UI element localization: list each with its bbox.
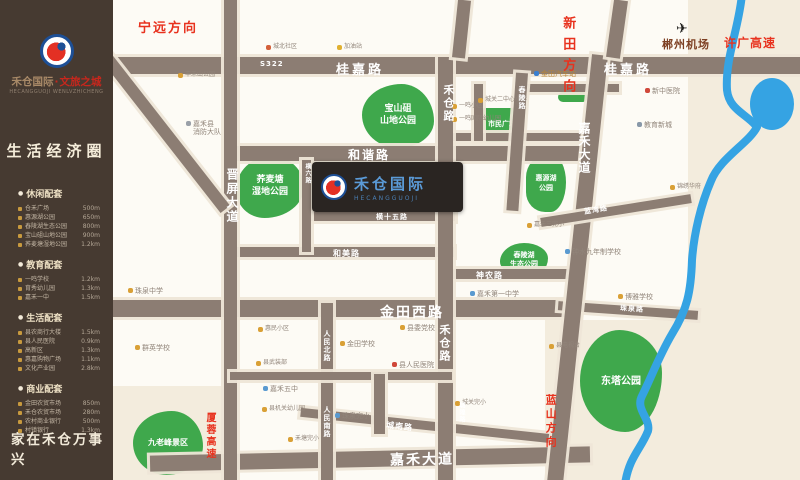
poi-label: 珠泉中学 (128, 287, 163, 295)
project-block: 禾仓国际 HECANGGUOJI (312, 162, 463, 212)
direction-sign: 宁远方向 (138, 22, 198, 36)
park-label: 惠源湖 (536, 174, 557, 183)
poi-icon (565, 249, 570, 254)
map-area: 荞麦塘湿地公园宝山砠山地公园市民广场惠源湖公园舂陵湖生态公园东塔公园九老峰景区 (0, 0, 800, 480)
park: 东塔公园 (580, 330, 662, 432)
poi-icon (263, 386, 268, 391)
amenity-item: 嘉禾一中1.5km (18, 293, 100, 302)
poi-icon (335, 413, 340, 418)
poi-label: 嘉禾县消防大队 (186, 120, 221, 136)
amenity-item: 宝山砠山地公园900m (18, 231, 100, 240)
poi-label: 教育新城 (637, 121, 672, 129)
brand-emblem (40, 34, 74, 68)
poi-text: 城北社区 (273, 44, 297, 51)
poi-label: 县机关幼儿园 (262, 406, 305, 413)
amenity-distance: 0.9km (81, 337, 100, 346)
direction-sign: 新田方向 (560, 16, 574, 100)
poi-label: 群英学校 (135, 344, 170, 352)
amenity-item: 高新区1.3km (18, 346, 100, 355)
amenity-icon (18, 296, 22, 300)
poi-icon (527, 223, 532, 228)
poi-icon (135, 345, 140, 350)
road-segment (452, 0, 471, 59)
poi-icon (340, 341, 345, 346)
amenity-item: 农村商业银行500m (18, 417, 100, 426)
poi-text: 新中医院 (652, 87, 680, 95)
road-label: 人民北路 (322, 330, 332, 362)
park-label: 舂陵湖 (514, 251, 535, 260)
park-label: 九老峰景区 (148, 438, 188, 448)
road-label: 禾仓路 (436, 324, 452, 363)
road-label: 禾仓路 (440, 84, 456, 123)
amenity-distance: 850m (83, 399, 100, 408)
direction-sign: 郴州机场 (662, 39, 710, 51)
park-label: 公园 (539, 184, 553, 193)
poi-label: 城北社区 (266, 44, 297, 51)
amenity-distance: 1.3km (81, 346, 100, 355)
road-segment (230, 372, 452, 380)
poi-text: 加油站 (344, 44, 362, 51)
road-label: 横六路 (303, 163, 312, 184)
amenity-section-title: ●商业配套 (18, 382, 100, 395)
amenity-name: 仓禾广场 (25, 204, 80, 213)
road-segment (606, 0, 628, 59)
poi-icon (670, 185, 675, 190)
amenity-name: 高新区 (25, 346, 78, 355)
poi-label: 县武装部 (256, 360, 287, 367)
road-label: 嘉禾大道 (576, 122, 593, 174)
amenity-section-title: ●休闲配套 (18, 187, 100, 200)
poi-icon (256, 361, 261, 366)
poi-text: 县武装部 (263, 360, 287, 367)
road-label: 桂嘉路 (604, 59, 652, 78)
road-segment (450, 269, 582, 279)
poi-label: 金田学校 (340, 340, 375, 348)
road-segment (230, 146, 592, 161)
poi-text: 钟水九年制学校 (572, 248, 621, 256)
amenity-icon (18, 207, 22, 211)
amenity-item: 金田农贸市场850m (18, 399, 100, 408)
poi-icon (618, 294, 623, 299)
poi-label: 嘉禾第一中学 (470, 290, 519, 298)
section-title-text: 休闲配套 (26, 187, 62, 200)
amenity-item: 县人民医院0.9km (18, 337, 100, 346)
poi-label: 钟水九年制学校 (565, 248, 621, 256)
poi-text: 一鸣小区 (459, 103, 483, 110)
amenity-distance: 500m (83, 417, 100, 426)
park-label: 生态公园 (510, 260, 538, 269)
amenity-name: 嘉禾一中 (25, 293, 78, 302)
amenity-distance: 900m (83, 231, 100, 240)
poi-text: 珠泉中学 (135, 287, 163, 295)
amenity-name: 育秀幼儿园 (25, 284, 78, 293)
project-name: 禾仓国际 (354, 173, 426, 194)
poi-icon (637, 122, 642, 127)
direction-sign: 蓝山方向 (544, 394, 556, 450)
poi-text: 一鸣国际幼儿园 (459, 116, 501, 123)
amenity-icon (18, 340, 22, 344)
park-label: 湿地公园 (252, 187, 288, 199)
amenity-distance: 1.5km (81, 328, 100, 337)
poi-label: 珠泉完小 (335, 412, 370, 420)
brand-wordmark: 禾仓国际·文旅之城 (0, 74, 113, 89)
poi-text: 惠民小区 (265, 326, 289, 333)
amenity-icon (18, 234, 22, 238)
park: 宝山砠山地公园 (362, 84, 434, 148)
brand-pinyin: HECANGGUOJI WENLVZHICHENG (0, 89, 113, 95)
amenity-distance: 500m (83, 204, 100, 213)
amenity-distance: 1.1km (81, 355, 100, 364)
amenity-distance: 800m (83, 222, 100, 231)
amenity-icon (18, 225, 22, 229)
amenity-item: 育秀幼儿园1.3km (18, 284, 100, 293)
poi-icon (178, 73, 183, 78)
park-label: 宝山砠 (384, 104, 411, 116)
amenity-name: 舂陵湖生态公园 (25, 222, 80, 231)
amenity-item: 禾仓农贸市场280m (18, 408, 100, 417)
section-title-text: 教育配套 (26, 258, 62, 271)
brand-emblem-icon (321, 174, 347, 200)
poi-icon (258, 327, 263, 332)
sidebar-slogan: 家在禾仓万事兴 (11, 428, 113, 468)
road-label: 桂嘉路 (336, 59, 384, 78)
park: 荞麦塘湿地公园 (236, 156, 304, 218)
amenity-icon (18, 243, 22, 247)
brand-subtitle: 文旅之城 (60, 76, 102, 88)
poi-label: 禾塘完小 (288, 436, 319, 443)
poi-label: 加油站 (337, 44, 362, 51)
amenity-item: 仓禾广场500m (18, 204, 100, 213)
amenity-name: 禾仓农贸市场 (25, 408, 80, 417)
road-label: 和谐路 (348, 146, 390, 163)
amenity-icon (18, 278, 22, 282)
poi-text: 珠泉完小 (342, 412, 370, 420)
bullet-icon: ● (18, 385, 23, 392)
amenity-icon (18, 402, 22, 406)
poi-label: 丰禾山公园 (178, 72, 215, 79)
road-label: 人民南路 (322, 406, 332, 438)
park-label: 东塔公园 (601, 375, 641, 388)
road-segment (374, 374, 385, 434)
poi-text: 教育新城 (644, 121, 672, 129)
poi-icon (645, 88, 650, 93)
amenity-icon (18, 411, 22, 415)
direction-sign: 厦蓉高速 (204, 412, 215, 460)
poi-label: 锦绣华府 (670, 184, 701, 191)
amenity-name: 一鸣学校 (25, 275, 78, 284)
poi-text: 嘉禾三完小 (534, 222, 564, 229)
amenity-name: 惠源湖公园 (25, 213, 80, 222)
road-label: 横十五路 (376, 212, 408, 222)
amenity-name: 文化产业园 (25, 364, 78, 373)
poi-label: 一鸣小区 (452, 103, 483, 110)
poi-text: 禾塘完小 (295, 436, 319, 443)
road-segment (474, 84, 483, 141)
poi-text: 县电视台 (556, 343, 580, 350)
section-title-text: 商业配套 (26, 382, 62, 395)
amenity-name: 宝山砠山地公园 (25, 231, 80, 240)
amenity-item: 舂陵湖生态公园800m (18, 222, 100, 231)
poi-label: 一鸣国际幼儿园 (452, 116, 501, 123)
poi-text: 嘉禾五中 (270, 385, 298, 393)
sidebar-headline: 生活经济圈 (0, 140, 113, 161)
poi-label: 嘉禾五中 (263, 385, 298, 393)
amenity-distance: 1.2km (81, 240, 100, 249)
bullet-icon: ● (18, 190, 23, 197)
amenity-item: 惠源湖公园650m (18, 213, 100, 222)
brand-name: 禾仓国际 (12, 76, 54, 88)
poi-icon (128, 288, 133, 293)
amenity-item: 文化产业园2.8km (18, 364, 100, 373)
poi-icon (478, 98, 483, 103)
amenity-section-title: ●教育配套 (18, 258, 100, 271)
project-pinyin: HECANGGUOJI (354, 195, 426, 202)
amenity-icon (18, 216, 22, 220)
amenity-icon (18, 287, 22, 291)
poi-text: 嘉禾县消防大队 (193, 120, 221, 136)
poi-text: 群英学校 (142, 344, 170, 352)
park: 惠源湖公园 (526, 155, 566, 212)
amenity-name: 惠嘉购物广场 (25, 355, 78, 364)
amenity-distance: 2.8km (81, 364, 100, 373)
poi-text: 博雅学校 (625, 293, 653, 301)
amenity-name: 县人民医院 (25, 337, 78, 346)
poi-icon (392, 362, 397, 367)
amenity-sections: ●休闲配套仓禾广场500m惠源湖公园650m舂陵湖生态公园800m宝山砠山地公园… (18, 178, 100, 435)
road-label: 和美路 (333, 248, 360, 259)
poi-label: 惠民小区 (258, 326, 289, 333)
amenity-item: 县农商行大楼1.5km (18, 328, 100, 337)
poi-icon (549, 344, 554, 349)
amenity-icon (18, 358, 22, 362)
amenity-name: 金田农贸市场 (25, 399, 80, 408)
amenity-distance: 1.2km (81, 275, 100, 284)
poi-text: 锦绣华府 (677, 184, 701, 191)
poi-text: 丰禾山公园 (185, 72, 215, 79)
poi-icon (400, 325, 405, 330)
road-segment (113, 57, 800, 74)
amenity-icon (18, 349, 22, 353)
poi-icon (470, 291, 475, 296)
poi-text: 县机关幼儿园 (269, 406, 305, 413)
amenity-name: 农村商业银行 (25, 417, 80, 426)
poi-label: 县电视台 (549, 343, 580, 350)
sidebar: 禾仓国际·文旅之城 HECANGGUOJI WENLVZHICHENG 生活经济… (0, 0, 113, 480)
park-label: 山地公园 (380, 116, 416, 128)
road-label: 神农路 (476, 270, 503, 281)
amenity-distance: 1.3km (81, 284, 100, 293)
road-label: S322 (260, 60, 284, 68)
amenity-icon (18, 331, 22, 335)
amenity-section-title: ●生活配套 (18, 311, 100, 324)
road-label: 城南路 (385, 420, 413, 434)
poi-icon (337, 45, 342, 50)
park-label: 荞麦塘 (256, 175, 283, 187)
poi-icon (186, 121, 191, 126)
amenity-item: 一鸣学校1.2km (18, 275, 100, 284)
road-label: 舂陵路 (517, 86, 527, 110)
poi-label: 县人民医院 (392, 361, 434, 369)
poi-icon (262, 407, 267, 412)
bullet-icon: ● (18, 314, 23, 321)
poi-icon (266, 45, 271, 50)
direction-sign: 许广高速 (724, 37, 776, 50)
poi-label: 新中医院 (645, 87, 680, 95)
amenity-icon (18, 367, 22, 371)
road-label: 金田西路 (380, 302, 444, 322)
amenity-icon (18, 420, 22, 424)
amenity-distance: 1.5km (81, 293, 100, 302)
amenity-item: 惠嘉购物广场1.1km (18, 355, 100, 364)
poi-label: 县委党校 (400, 324, 435, 332)
road-label: 城隍路 (457, 402, 466, 423)
road-segment (224, 0, 237, 480)
poi-text: 县委党校 (407, 324, 435, 332)
poi-icon (534, 71, 539, 76)
airplane-icon: ✈ (676, 21, 688, 37)
poi-label: 嘉禾三完小 (527, 222, 564, 229)
road-label: 珠泉路 (620, 303, 645, 315)
location-map-poster: 荞麦塘湿地公园宝山砠山地公园市民广场惠源湖公园舂陵湖生态公园东塔公园九老峰景区 (0, 0, 800, 480)
section-title-text: 生活配套 (26, 311, 62, 324)
amenity-item: 荞麦塘湿地公园1.2km (18, 240, 100, 249)
amenity-name: 荞麦塘湿地公园 (25, 240, 78, 249)
poi-icon (288, 437, 293, 442)
poi-label: 博雅学校 (618, 293, 653, 301)
amenity-distance: 650m (83, 213, 100, 222)
bullet-icon: ● (18, 261, 23, 268)
amenity-name: 县农商行大楼 (25, 328, 78, 337)
road-segment (113, 300, 580, 317)
poi-text: 金田学校 (347, 340, 375, 348)
road-label: 嘉禾大道 (390, 448, 454, 469)
poi-text: 县人民医院 (399, 361, 434, 369)
road-label: 晋屏大道 (224, 168, 241, 224)
amenity-distance: 280m (83, 408, 100, 417)
poi-text: 嘉禾第一中学 (477, 290, 519, 298)
brand-separator: · (55, 76, 59, 88)
